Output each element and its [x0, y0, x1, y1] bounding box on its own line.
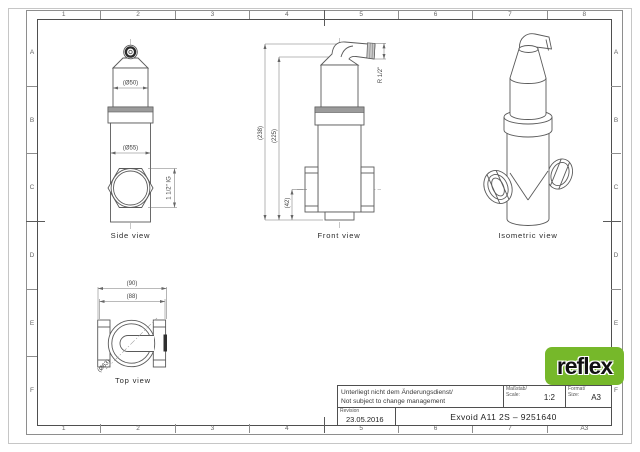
dim-88-label: (88)	[127, 294, 138, 300]
isometric-view-drawing: Isometric view	[460, 33, 600, 248]
revision-label: Revision	[340, 409, 359, 415]
center-mark-right	[603, 221, 621, 222]
row-label: C	[611, 154, 621, 222]
port-cap	[164, 335, 168, 352]
bottom-stub	[325, 212, 354, 220]
format-cell: Format/ Size: A3	[566, 386, 611, 407]
col-label: 4	[250, 424, 324, 433]
front-view-drawing: (238) (225) R 1/2" (42) Front view	[253, 33, 393, 248]
dim-d50-label: (Ø50)	[123, 81, 138, 87]
reflex-logo-text: reflex	[557, 353, 612, 380]
row-label: B	[27, 87, 37, 155]
row-label: B	[611, 87, 621, 155]
row-label: F	[27, 357, 37, 424]
change-note-cell: Unterliegt nicht dem Änderungsdienst/ No…	[338, 386, 504, 407]
note-line-en: Not subject to change management	[341, 397, 503, 406]
col-label: 2	[101, 424, 175, 433]
row-label: C	[27, 154, 37, 222]
isometric-view-caption: Isometric view	[498, 231, 557, 240]
lower-body	[318, 125, 361, 212]
format-label: Format/ Size:	[568, 387, 585, 398]
upper-body	[113, 68, 148, 107]
vent-cone	[113, 58, 148, 68]
scale-value: 1:2	[544, 393, 555, 402]
top-view-drawing: (90) (88) (Ø63) Top view	[90, 277, 200, 389]
scale-label: Maßstab/ Scale:	[506, 387, 527, 398]
dim-90-label: (90)	[127, 281, 138, 287]
upper-body-cylinder	[510, 78, 546, 119]
dim-42-label: (42)	[285, 198, 291, 209]
col-label: 2	[101, 10, 175, 19]
spout-cap	[367, 43, 375, 59]
drawing-title-cell: Exvoid A11 2S – 9251640	[396, 408, 611, 425]
col-label: 1	[27, 10, 101, 19]
col-label: 5	[325, 10, 399, 19]
scale-cell: Maßstab/ Scale: 1:2	[504, 386, 566, 407]
col-label: 3	[176, 10, 250, 19]
drawing-sheet: 1 2 3 4 5 6 7 8 1 2 3 4 5 6 7 A3 A B C D…	[0, 0, 640, 452]
col-label: 8	[548, 10, 621, 19]
row-label: D	[611, 222, 621, 290]
dim-225-label: (225)	[272, 129, 278, 143]
reflex-logo: reflex	[545, 347, 624, 385]
dim-238-label: (238)	[258, 126, 264, 140]
upper-body	[321, 65, 358, 107]
col-label: 4	[250, 10, 324, 19]
side-view-caption: Side view	[111, 231, 151, 240]
row-label: A	[27, 19, 37, 87]
center-mark-left	[26, 221, 45, 222]
dim-thread-label: 1 1/2" IG	[167, 176, 173, 200]
front-view-caption: Front view	[317, 231, 360, 240]
side-view-drawing: (Ø50) (Ø55) 1 1/2" IG Side view	[90, 33, 200, 248]
col-label: 7	[473, 10, 547, 19]
format-value: A3	[591, 393, 601, 402]
revision-cell: Revision 23.05.2016	[338, 408, 396, 425]
row-label: E	[27, 290, 37, 358]
right-port-nut	[361, 167, 374, 212]
top-view-caption: Top view	[115, 376, 151, 385]
collar-hatch	[108, 107, 153, 112]
dim-r12-label: R 1/2"	[378, 67, 384, 83]
row-label: D	[27, 222, 37, 290]
dim-d55-label: (Ø55)	[123, 146, 138, 152]
title-block: Unterliegt nicht dem Änderungsdienst/ No…	[337, 385, 612, 426]
col-label: 3	[176, 424, 250, 433]
collar-hatch	[315, 107, 364, 113]
col-label: 6	[399, 10, 473, 19]
center-mark-bottom	[324, 417, 325, 433]
row-label: A	[611, 19, 621, 87]
revision-date: 23.05.2016	[346, 415, 384, 424]
note-line-de: Unterliegt nicht dem Änderungsdienst/	[341, 388, 503, 397]
drawing-title: Exvoid A11 2S – 9251640	[450, 412, 556, 422]
center-mark-top	[324, 10, 325, 26]
cone-top	[519, 46, 538, 53]
col-label: 1	[27, 424, 101, 433]
